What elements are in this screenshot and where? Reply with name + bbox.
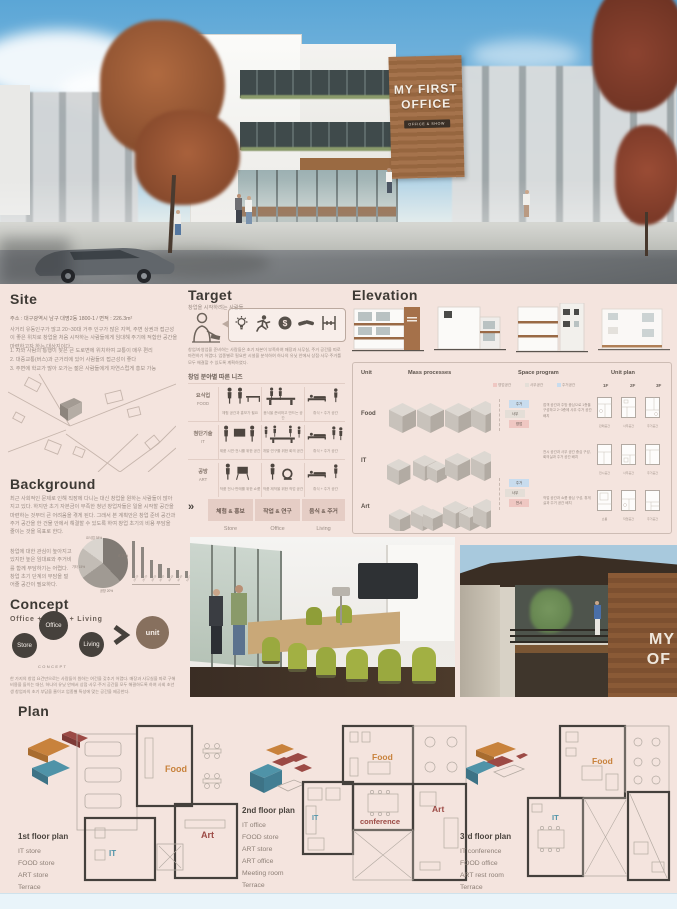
plan-item: ART store: [18, 870, 55, 882]
elevation-heading: Elevation: [352, 288, 418, 302]
room-label-art: Art: [432, 804, 444, 814]
legend-item: 주거공간: [557, 383, 575, 388]
bar: 30-34: [150, 560, 157, 584]
unit-plan-thumb: [621, 397, 636, 418]
thumb-caption: 전시공간: [597, 471, 612, 475]
chair: [316, 647, 336, 678]
balcony-railing: [510, 625, 620, 645]
space-stack: 주거 사무 영업: [499, 399, 534, 431]
thumb-caption: 판매공간: [597, 424, 612, 428]
partial-sign-text: MY: [649, 631, 675, 649]
plan-title: 3rd floor plan: [460, 832, 511, 841]
plan-item: IT office: [242, 820, 284, 832]
background-paragraph: 최근 사회적인 문제로 인해 직장에 다니는 대신 창업을 원하는 사람들이 많…: [10, 495, 176, 537]
chair: [346, 649, 368, 682]
person-green-jacket: [230, 585, 248, 655]
unit-plan-thumb: [645, 444, 660, 465]
plan-item: IT store: [18, 846, 55, 858]
needs-cell: 개발·연구를 위한 회의 공간: [261, 425, 304, 459]
needs-row: 요식업 FOOD 체험 공간과 홍보가 필요 음식을 준비하고 만드는 공간 휴…: [188, 383, 345, 422]
idea-icon: [233, 315, 250, 333]
pictogram: [220, 387, 260, 405]
needs-cell: 휴식 + 주거 공간: [304, 463, 346, 497]
stack-cell: 주거: [509, 479, 529, 487]
unit-plan-thumbs: 쇼룸 작업공간 주거공간: [597, 490, 669, 521]
needs-row: 공방 ART 작품 전시·판매를 위한 쇼룸 작품 제작을 위한 작업 공간 휴…: [188, 459, 345, 498]
needs-caption: 작품 전시·판매를 위한 쇼룸: [219, 487, 261, 492]
legend-swatch: [525, 383, 529, 387]
stack-cell: 사무: [505, 410, 525, 418]
wood-soffit: [300, 158, 398, 170]
lamp-shade: [332, 587, 350, 596]
site-heading: Site: [10, 292, 37, 306]
presentation-board: MY FIRST OFFICE OFFICE & SHOW: [0, 0, 677, 909]
unit-circle: unit: [136, 616, 169, 649]
thumb-caption: 작업공간: [621, 517, 636, 521]
pie-label: 요식업 38%: [86, 535, 102, 540]
plan-title: 1st floor plan: [18, 832, 68, 841]
plan-heading: Plan: [18, 704, 49, 718]
handshake-icon: [297, 315, 315, 331]
concept-caption: CONCEPT: [38, 664, 67, 669]
floor-header: 2F: [630, 383, 635, 388]
needs-cell: 작품 전시·판매를 위한 쇼룸: [218, 463, 261, 497]
needs-caption: 개발·연구를 위한 회의 공간: [262, 449, 304, 454]
chair: [262, 637, 280, 664]
plan-item: Meeting room: [242, 868, 284, 880]
needs-caption: 체험 공간과 홍보가 필요: [219, 411, 261, 416]
chair: [336, 605, 352, 623]
needs-caption: 음식을 준비하고 만드는 공간: [262, 411, 304, 421]
svg-text:$: $: [283, 318, 288, 328]
pie-label: IT 27%: [118, 554, 128, 558]
bar: 25-29: [141, 547, 148, 585]
needs-row: 첨단기술 IT 제품 시연·전시를 위한 공간 개발·연구를 위한 회의 공간 …: [188, 421, 345, 460]
legend-item: 사무공간: [525, 383, 543, 388]
unit-plan-thumb: [597, 397, 612, 418]
unit-plan-thumbs: 판매공간 사무공간 주거공간: [597, 397, 669, 428]
partial-sign-text: OF: [647, 651, 671, 669]
space-header: Space program: [518, 370, 559, 376]
summary-sublabel: Store: [208, 526, 253, 532]
unit-plan-thumb: [645, 397, 660, 418]
pedestrian: [173, 210, 182, 235]
sign-panel: MY FIRST OFFICE OFFICE & SHOW: [388, 55, 464, 179]
street-tree-red: [592, 0, 677, 112]
pictogram: [263, 387, 303, 405]
pictogram: [306, 387, 346, 405]
bar: 20-24: [132, 541, 139, 584]
needs-caption: 작품 제작을 위한 작업 공간: [262, 487, 304, 492]
needs-caption: 휴식 + 주거 공간: [305, 487, 346, 492]
summary-sublabel: Office: [255, 526, 300, 532]
wood-deck: [515, 645, 610, 653]
unit-row-label: Art: [361, 504, 370, 510]
photo-exterior: MY OF: [460, 545, 677, 697]
window-band-2f: [240, 122, 392, 150]
bar: 45-49: [176, 570, 183, 584]
mass-cubes: [387, 395, 491, 437]
street-tree-red: [615, 125, 677, 225]
bottom-strip: [0, 893, 677, 909]
persona-icon: [190, 311, 222, 345]
room-label-art: Art: [201, 830, 214, 840]
floor-header: 1F: [603, 383, 608, 388]
summary-row: » 체험 & 홍보 작업 & 연구 음식 & 주거 Store Office L…: [188, 499, 345, 533]
needs-cell: 음식을 준비하고 만드는 공간: [261, 387, 304, 421]
pictogram: [263, 463, 303, 481]
runner-icon: [255, 314, 272, 333]
needs-row-label-en: FOOD: [188, 401, 218, 407]
mass-cubes: [387, 489, 491, 531]
pictogram: [306, 463, 346, 481]
unit-note: 작업 공간과 쇼룸 중심 구성, 휴게실과 주거 공간 배치: [543, 496, 593, 507]
concept-paragraph: 한 가지의 창업 요건만으로는 사람들이 원하는 여건을 갖추기 어렵다. 매장…: [10, 676, 178, 695]
pictogram: [306, 425, 346, 443]
floor-plan-drawing: Food Art IT: [75, 724, 240, 888]
pedestrian: [385, 168, 393, 193]
legend-swatch: [557, 383, 561, 387]
photo-interior: [190, 537, 455, 697]
pie-label: 공방 20%: [100, 588, 113, 593]
site-address: 주소 : 대구광역시 남구 대명2동 1800-1 / 면적 : 226.3m²: [10, 315, 178, 324]
floor-plan-drawing: Food conference IT Art: [298, 722, 468, 888]
plan-item: FOOD store: [242, 832, 284, 844]
needs-row-label-ko: 공방: [188, 468, 218, 477]
needs-row-label-ko: 요식업: [188, 392, 218, 401]
unit-plan-thumbs: 전시공간 사무공간 주거공간: [597, 444, 669, 475]
plan-item: ART store: [242, 844, 284, 856]
elevation-drawing: [352, 303, 424, 355]
lower-interior: [515, 653, 610, 697]
elevation-drawing: [434, 303, 506, 355]
sign-title-line2: OFFICE: [389, 96, 462, 113]
plan-item: Terrace: [242, 880, 284, 892]
plan-item: ART office: [242, 856, 284, 868]
balcony-planting: [240, 147, 392, 151]
unit-row-label: Food: [361, 411, 376, 417]
summary-cell: 음식 & 주거: [302, 499, 345, 521]
unit-note: 전시 공간과 사무 공간 중심 구성, 회의실과 주거 공간 배치: [543, 450, 593, 461]
pedestrian: [244, 196, 253, 224]
site-note: 1. 차와 사람의 통행이 잦은 큰 도로변에 위치하여 교통이 매우 편리: [10, 347, 178, 355]
unit-plan-header: Unit plan: [611, 370, 635, 376]
pictogram: [263, 425, 303, 443]
unit-table: Unit Mass processes Space program Unit p…: [352, 362, 672, 534]
plan-item-list: IT office FOOD store ART store ART offic…: [242, 820, 284, 892]
unit-plan-thumb: [645, 490, 660, 511]
money-icon: $: [277, 315, 293, 331]
pedestrian: [522, 190, 531, 217]
stack-cell: 사무: [505, 489, 525, 497]
pedestrian: [234, 194, 243, 223]
chevron-icon: [111, 624, 131, 646]
wall-shadow: [460, 585, 500, 697]
legend-swatch: [493, 383, 497, 387]
elevation-drawing: [516, 303, 588, 355]
concept-heading: Concept: [10, 597, 69, 611]
person-in-suit: [208, 589, 224, 654]
unit-note: 접객 공간과 주방 중심으로 1층을 구성하고 2~3층에 사무·주거 공간 배…: [543, 403, 593, 419]
concept-circle-office: Office: [39, 611, 68, 640]
person-on-terrace: [593, 601, 601, 635]
bar: 35-39: [158, 564, 165, 584]
site-map: [8, 374, 176, 472]
room-label-conference: conference: [360, 817, 400, 826]
plan-title: 2nd floor plan: [242, 806, 295, 815]
site-note: 2. 대중교통(버스)과 근거리에 있어 사람들의 접근성이 좋다: [10, 356, 178, 364]
unit-plan-thumb: [621, 444, 636, 465]
thumb-caption: 주거공간: [645, 471, 660, 475]
mass-header: Mass processes: [408, 370, 451, 376]
tv-screen: [358, 563, 418, 599]
elevation-drawing: [598, 303, 670, 355]
unit-row-label: IT: [361, 458, 366, 464]
mass-cubes: [387, 443, 491, 485]
needs-caption: 휴식 + 주거 공간: [305, 449, 346, 454]
tree-trunk: [645, 212, 648, 256]
lamp-pole: [340, 595, 342, 625]
sign-badge: OFFICE & SHOW: [404, 119, 450, 128]
floor-header: 3F: [656, 383, 661, 388]
thumb-caption: 쇼룸: [597, 517, 612, 521]
needs-row-label-en: ART: [188, 477, 218, 483]
space-stack: 주거 사무 전시: [499, 478, 534, 510]
summary-cell: 작업 & 연구: [255, 499, 300, 521]
target-paragraph: 창업/자영업을 준비하는 사람들은 초기 자본이 부족하여 매장과 사무실, 주…: [188, 347, 345, 366]
site-building-marker: [60, 398, 82, 421]
plan-item-list: IT conference FOOD office ART rest room …: [460, 846, 504, 894]
target-heading: Target: [188, 288, 232, 302]
speech-bubble-tail: [222, 320, 229, 328]
legend-item: 영업공간: [493, 383, 511, 388]
unit-plan-thumb: [597, 490, 612, 511]
room-label-it: IT: [552, 813, 559, 822]
floor-plan-drawing: Food IT: [520, 722, 672, 886]
site-note: 3. 주변에 학교가 많아 오가는 젊은 사람들에게 자연스럽게 홍보 가능: [10, 365, 178, 373]
plan-item: FOOD store: [18, 858, 55, 870]
needs-caption: 휴식 + 주거 공간: [305, 411, 346, 416]
room-label-food: Food: [592, 756, 613, 766]
pictogram: [220, 425, 260, 443]
plan-item: IT conference: [460, 846, 504, 858]
thumb-caption: 주거공간: [645, 424, 660, 428]
motion-blur: [0, 238, 70, 284]
needs-caption: 제품 시연·전시를 위한 공간: [219, 449, 261, 454]
stack-cell: 전시: [509, 499, 529, 507]
thumb-caption: 주거공간: [645, 517, 660, 521]
balcony-planting: [240, 95, 392, 99]
unit-plan-thumb: [597, 444, 612, 465]
needs-cell: 휴식 + 주거 공간: [304, 425, 346, 459]
chair: [412, 647, 436, 684]
room-label-it: IT: [109, 849, 116, 858]
room-label-food: Food: [165, 764, 187, 774]
pie-label: 기타 15%: [72, 564, 85, 569]
stack-cell: 영업: [509, 420, 529, 428]
pie-chart: 요식업 38% IT 27% 공방 20% 기타 15%: [78, 538, 128, 588]
needs-row-label-en: IT: [188, 439, 218, 445]
hero-rendering: MY FIRST OFFICE OFFICE & SHOW: [0, 0, 677, 284]
concept-circle-store: Store: [12, 633, 37, 658]
thumb-caption: 사무공간: [621, 471, 636, 475]
chair: [378, 649, 401, 684]
arrow-icon: »: [188, 501, 194, 513]
concept-circle-living: Living: [79, 632, 104, 657]
chair: [288, 643, 307, 672]
bar-chart: 20-2425-2930-3435-3940-4445-4950-5455-59…: [132, 540, 180, 594]
unit-header: Unit: [361, 370, 372, 376]
thumb-caption: 사무공간: [621, 424, 636, 428]
wood-wall: MY OF: [608, 573, 677, 697]
needs-cell: 제품 시연·전시를 위한 공간: [218, 425, 261, 459]
window-band-3f: [240, 70, 392, 98]
goal-icon: [320, 314, 338, 332]
plan-item: FOOD office: [460, 858, 504, 870]
needs-table: 요식업 FOOD 체험 공간과 홍보가 필요 음식을 준비하고 만드는 공간 휴…: [188, 383, 345, 497]
chair: [306, 607, 322, 625]
summary-sublabel: Living: [302, 526, 345, 532]
room-label-it: IT: [312, 815, 319, 822]
summary-cell: 체험 & 홍보: [208, 499, 253, 521]
bar: 40-44: [167, 568, 174, 585]
needs-cell: 작품 제작을 위한 작업 공간: [261, 463, 304, 497]
needs-cell: 휴식 + 주거 공간: [304, 387, 346, 421]
pictogram: [220, 463, 260, 481]
axon-diagram: [460, 738, 528, 800]
room-label-food: Food: [372, 752, 393, 762]
needs-cell: 체험 공간과 홍보가 필요: [218, 387, 261, 421]
stack-cell: 주거: [509, 400, 529, 408]
plan-item: ART rest room: [460, 870, 504, 882]
background-heading: Background: [10, 477, 96, 491]
plan-item-list: IT store FOOD store ART store Terrace: [18, 846, 55, 894]
needs-row-label-ko: 첨단기술: [188, 430, 218, 439]
unit-plan-thumb: [621, 490, 636, 511]
background-paragraph-2: 창업에 대한 관심이 높아지고 있지만 높은 임대료와 주거비를 함께 부담하기…: [10, 548, 72, 590]
